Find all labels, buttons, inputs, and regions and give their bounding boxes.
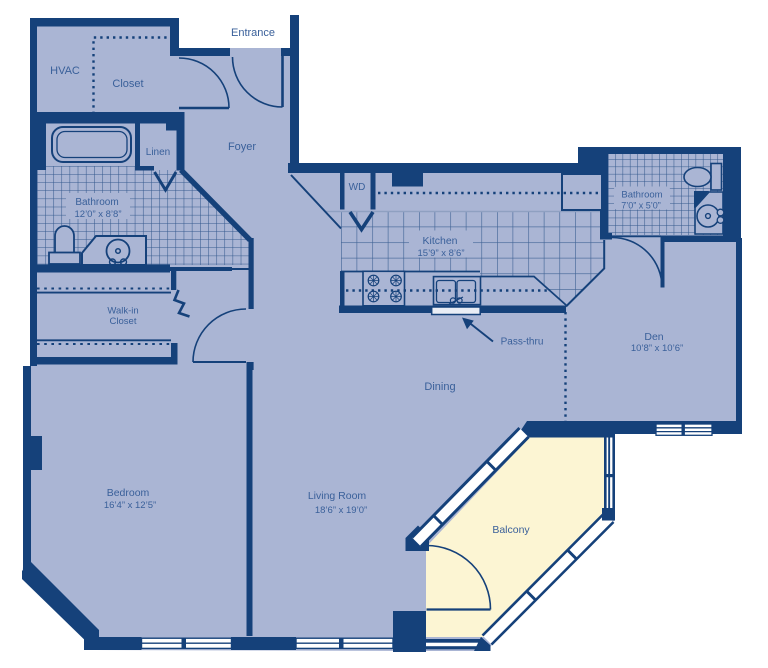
svg-text:Living Room: Living Room <box>308 490 367 502</box>
svg-text:WD: WD <box>349 182 366 193</box>
svg-text:Bathroom: Bathroom <box>75 197 118 208</box>
svg-text:Balcony: Balcony <box>492 524 530 536</box>
svg-text:10’8” x 10’6”: 10’8” x 10’6” <box>631 343 683 354</box>
svg-text:Closet: Closet <box>110 316 137 327</box>
svg-text:16’4” x 12’5”: 16’4” x 12’5” <box>104 500 156 511</box>
svg-text:Dining: Dining <box>424 381 455 393</box>
svg-text:15’9” x 8’6”: 15’9” x 8’6” <box>418 248 465 259</box>
svg-text:HVAC: HVAC <box>50 65 80 77</box>
svg-text:Den: Den <box>644 331 663 343</box>
svg-text:Entrance: Entrance <box>231 27 275 39</box>
svg-text:18’6” x 19’0”: 18’6” x 19’0” <box>315 505 367 516</box>
svg-text:Linen: Linen <box>146 147 170 158</box>
svg-text:Pass-thru: Pass-thru <box>501 337 544 348</box>
svg-text:12’0” x 8’8”: 12’0” x 8’8” <box>75 209 122 220</box>
svg-text:Kitchen: Kitchen <box>422 235 457 247</box>
svg-text:Bedroom: Bedroom <box>107 487 150 499</box>
svg-text:Bathroom: Bathroom <box>621 190 662 201</box>
svg-text:Closet: Closet <box>112 78 143 90</box>
svg-text:7’0” x 5’0”: 7’0” x 5’0” <box>621 201 661 211</box>
svg-text:Walk-in: Walk-in <box>107 306 138 317</box>
svg-text:Foyer: Foyer <box>228 141 256 153</box>
